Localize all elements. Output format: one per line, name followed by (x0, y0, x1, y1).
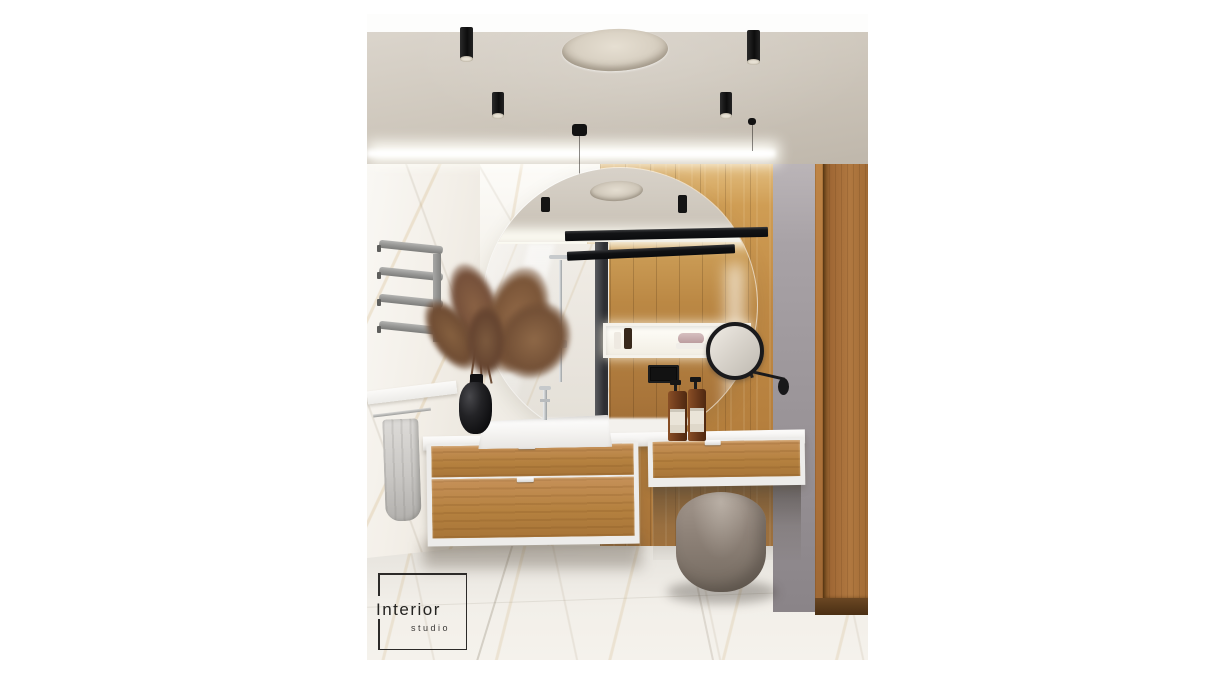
spotlight-1 (460, 27, 473, 60)
logo-border-right (466, 573, 468, 650)
drawer-pull (705, 440, 721, 445)
drawer-bottom (432, 477, 635, 539)
mirror-reflection-spot (678, 195, 687, 213)
drawer-right (653, 440, 800, 478)
niche-towel-folded (676, 343, 706, 349)
vanity-right-unit (648, 438, 806, 487)
cove-light-core (367, 150, 775, 157)
spotlight-face (492, 113, 504, 119)
spotlight-2 (492, 92, 504, 117)
spotlight-4 (747, 30, 760, 63)
soap-bottle-1 (668, 391, 687, 441)
faucet (543, 390, 547, 420)
radiator-bracket (377, 272, 381, 279)
white-canvas: Interior studio (0, 0, 1231, 692)
radiator-bracket (377, 326, 381, 333)
pendant-light-2 (748, 118, 756, 125)
logo-subtext: studio (411, 623, 450, 633)
soap-label (670, 409, 685, 433)
logo-box: Interior studio (378, 573, 467, 650)
hand-towel (382, 418, 422, 521)
drawer-pull (517, 477, 534, 482)
logo-border-top (378, 573, 467, 575)
mirror-reflection-spot (541, 197, 550, 212)
niche-bottle-white (614, 332, 621, 349)
pampas-plume (467, 306, 505, 376)
radiator-bracket (377, 299, 381, 306)
spotlight-face (460, 56, 473, 62)
flower-vase (459, 382, 492, 434)
niche-bottle-dark (624, 328, 632, 349)
vanity-left-unit (426, 442, 639, 547)
pouf (676, 492, 766, 592)
photo-frame: Interior studio (367, 14, 868, 660)
faucet-handle (540, 399, 550, 402)
spotlight-face (720, 113, 732, 119)
cosmetic-mirror-mount (778, 378, 789, 395)
faucet-spout (539, 386, 551, 390)
shower-head (549, 255, 569, 259)
logo-border-bottom (378, 649, 467, 651)
logo-border-left-bottom (378, 619, 380, 650)
spotlight-face (747, 59, 760, 65)
soap-label (690, 408, 704, 432)
soap-pump-stem (694, 382, 697, 389)
logo-border-left-top (378, 573, 380, 596)
door-bottom-shadow (815, 598, 868, 615)
pendant-light (572, 124, 587, 136)
logo-text: Interior (376, 600, 441, 620)
radiator-bracket (377, 245, 381, 252)
door-panel-recess (823, 160, 868, 598)
spotlight-3 (720, 92, 732, 117)
pendant-wire-2 (752, 125, 753, 151)
soap-bottle-2 (688, 389, 706, 441)
cosmetic-mirror (706, 322, 764, 380)
